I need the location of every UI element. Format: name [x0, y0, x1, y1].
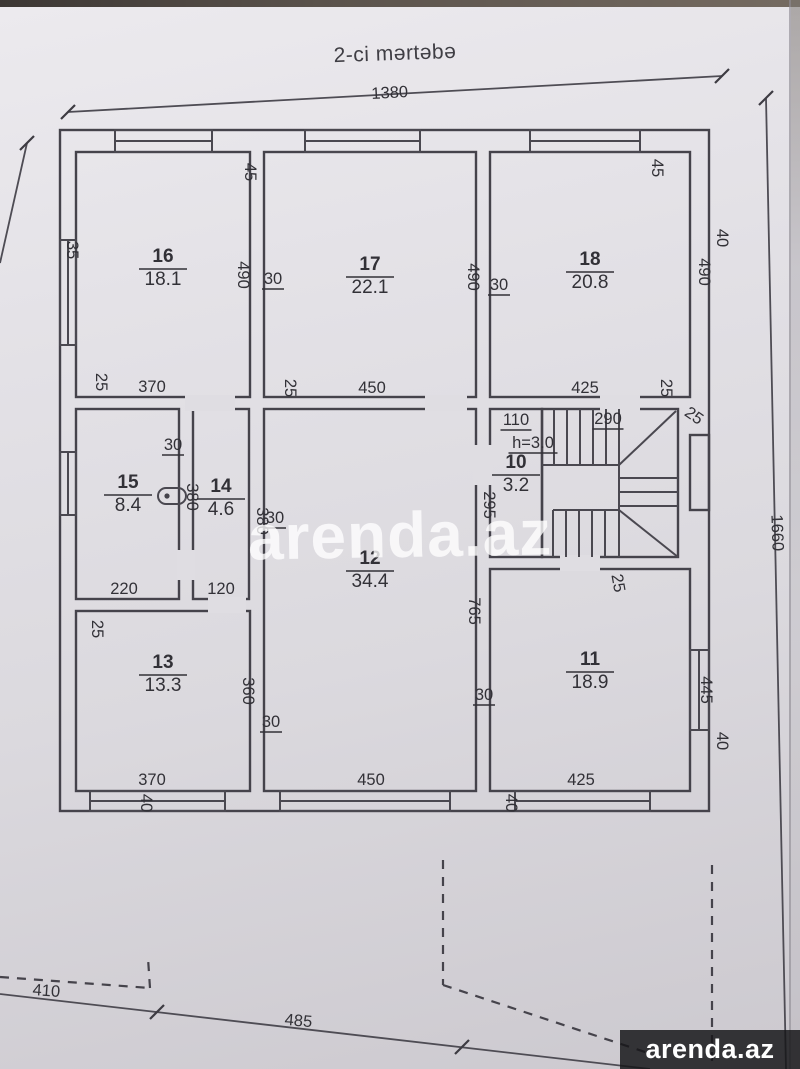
dimension-label: 485: [284, 1011, 313, 1031]
dimension-label: 25: [281, 379, 299, 397]
dimension-label: 1660: [767, 514, 786, 551]
dimension-label: 30: [475, 686, 493, 704]
room-number-label: 15: [117, 472, 139, 493]
dimension-label: 110: [503, 411, 529, 429]
dimension-label: 765: [465, 597, 483, 625]
dimension-label: 25: [607, 573, 628, 594]
room-number-label: 18: [579, 249, 600, 270]
room-number-label: 12: [359, 548, 380, 569]
dimension-label: 380: [183, 483, 201, 511]
dimension-label: 30: [266, 509, 284, 527]
dimension-label: 490: [695, 258, 713, 286]
room-12-outline: [264, 409, 476, 791]
dimension-label: 25: [88, 620, 106, 638]
dimension-label: 30: [262, 713, 280, 731]
dimension-label: 45: [648, 159, 666, 177]
floor-plan-drawing: 1380454535490304903049040253702545042525…: [0, 0, 800, 1069]
room-area-label: 3.2: [503, 475, 529, 496]
room-area-label: 4.6: [208, 499, 234, 520]
dimension-label: 1380: [371, 83, 409, 103]
dimension-label: 40: [713, 229, 731, 247]
dimension-label: 370: [138, 378, 166, 396]
room-area-label: 20.8: [572, 272, 609, 293]
scanned-floor-plan-photo: 2-ci mərtəbə: [0, 0, 800, 1069]
dimension-label: 30: [490, 276, 508, 294]
windows: [60, 130, 709, 811]
dimension-label: 295: [480, 491, 498, 519]
room-area-label: 18.1: [145, 269, 182, 290]
room-number-label: 16: [152, 246, 173, 267]
dimension-label: 25: [92, 373, 110, 391]
door-openings: [177, 395, 640, 613]
room-number-label: 17: [359, 254, 380, 275]
dimension-label: h=3.0: [512, 434, 554, 452]
dimension-label: 220: [110, 580, 138, 598]
room-number-label: 11: [580, 649, 601, 670]
dimension-label: 450: [357, 771, 385, 789]
room-number-label: 14: [210, 476, 232, 497]
stairwell-outline: [542, 409, 678, 557]
staircase: [542, 409, 678, 557]
dimension-label: 25: [681, 403, 706, 428]
dimension-label: 370: [138, 771, 166, 789]
shaft-outline: [690, 435, 709, 510]
dimension-label: 425: [571, 379, 599, 397]
toilet-icon: [158, 488, 186, 504]
dimension-label: 35: [63, 241, 81, 259]
dimension-label: 290: [594, 410, 622, 428]
dimension-label: 40: [502, 794, 520, 812]
dimension-label: 120: [207, 580, 235, 598]
brand-logo-text: arenda.az: [645, 1034, 774, 1065]
dimension-label: 40: [713, 732, 731, 750]
outer-walls: [60, 130, 709, 811]
dimension-label: 445: [697, 676, 715, 704]
dimension-label: 40: [137, 794, 155, 812]
room-number-label: 13: [152, 652, 173, 673]
dimension-label: 490: [464, 263, 482, 291]
room-area-label: 22.1: [352, 277, 389, 298]
dimension-label: 450: [358, 379, 386, 397]
dimension-label: 410: [32, 981, 61, 1001]
dimension-label: 360: [239, 677, 257, 705]
dimension-label: 490: [234, 261, 252, 289]
room-area-label: 8.4: [115, 495, 142, 516]
dimension-label: 25: [657, 379, 675, 397]
dimension-label: 30: [164, 436, 182, 454]
room-number-label: 10: [505, 452, 526, 473]
dimension-label: 45: [241, 163, 259, 181]
room-area-label: 18.9: [572, 672, 609, 693]
dimension-label: 425: [567, 771, 595, 789]
terrace-dashed-lines: [0, 860, 712, 1069]
dimension-label: 30: [264, 270, 282, 288]
brand-logo-box: arenda.az: [620, 1030, 800, 1069]
room-area-label: 13.3: [145, 675, 182, 696]
room-area-label: 34.4: [352, 571, 389, 592]
